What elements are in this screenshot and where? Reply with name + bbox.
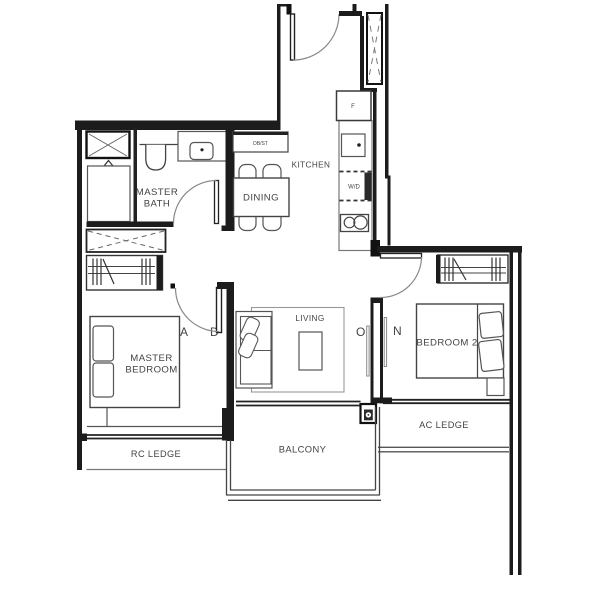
svg-text:F: F bbox=[351, 104, 355, 110]
svg-text:BATH: BATH bbox=[144, 199, 170, 210]
svg-text:W/D: W/D bbox=[348, 185, 360, 191]
svg-text:BEDROOM 2: BEDROOM 2 bbox=[416, 338, 477, 349]
svg-text:KITCHEN: KITCHEN bbox=[292, 161, 331, 170]
svg-text:O: O bbox=[356, 325, 365, 339]
svg-text:DINING: DINING bbox=[243, 193, 279, 204]
svg-text:DB/ST: DB/ST bbox=[253, 141, 268, 147]
svg-text:LIVING: LIVING bbox=[295, 314, 324, 323]
svg-text:N: N bbox=[393, 324, 402, 338]
svg-text:MASTER: MASTER bbox=[136, 187, 178, 198]
svg-text:BEDROOM: BEDROOM bbox=[125, 365, 177, 376]
svg-text:AC LEDGE: AC LEDGE bbox=[419, 420, 469, 430]
svg-text:BALCONY: BALCONY bbox=[279, 444, 327, 455]
svg-text:A: A bbox=[180, 325, 188, 339]
svg-text:RC LEDGE: RC LEDGE bbox=[131, 449, 181, 459]
svg-text:MASTER: MASTER bbox=[130, 353, 172, 364]
